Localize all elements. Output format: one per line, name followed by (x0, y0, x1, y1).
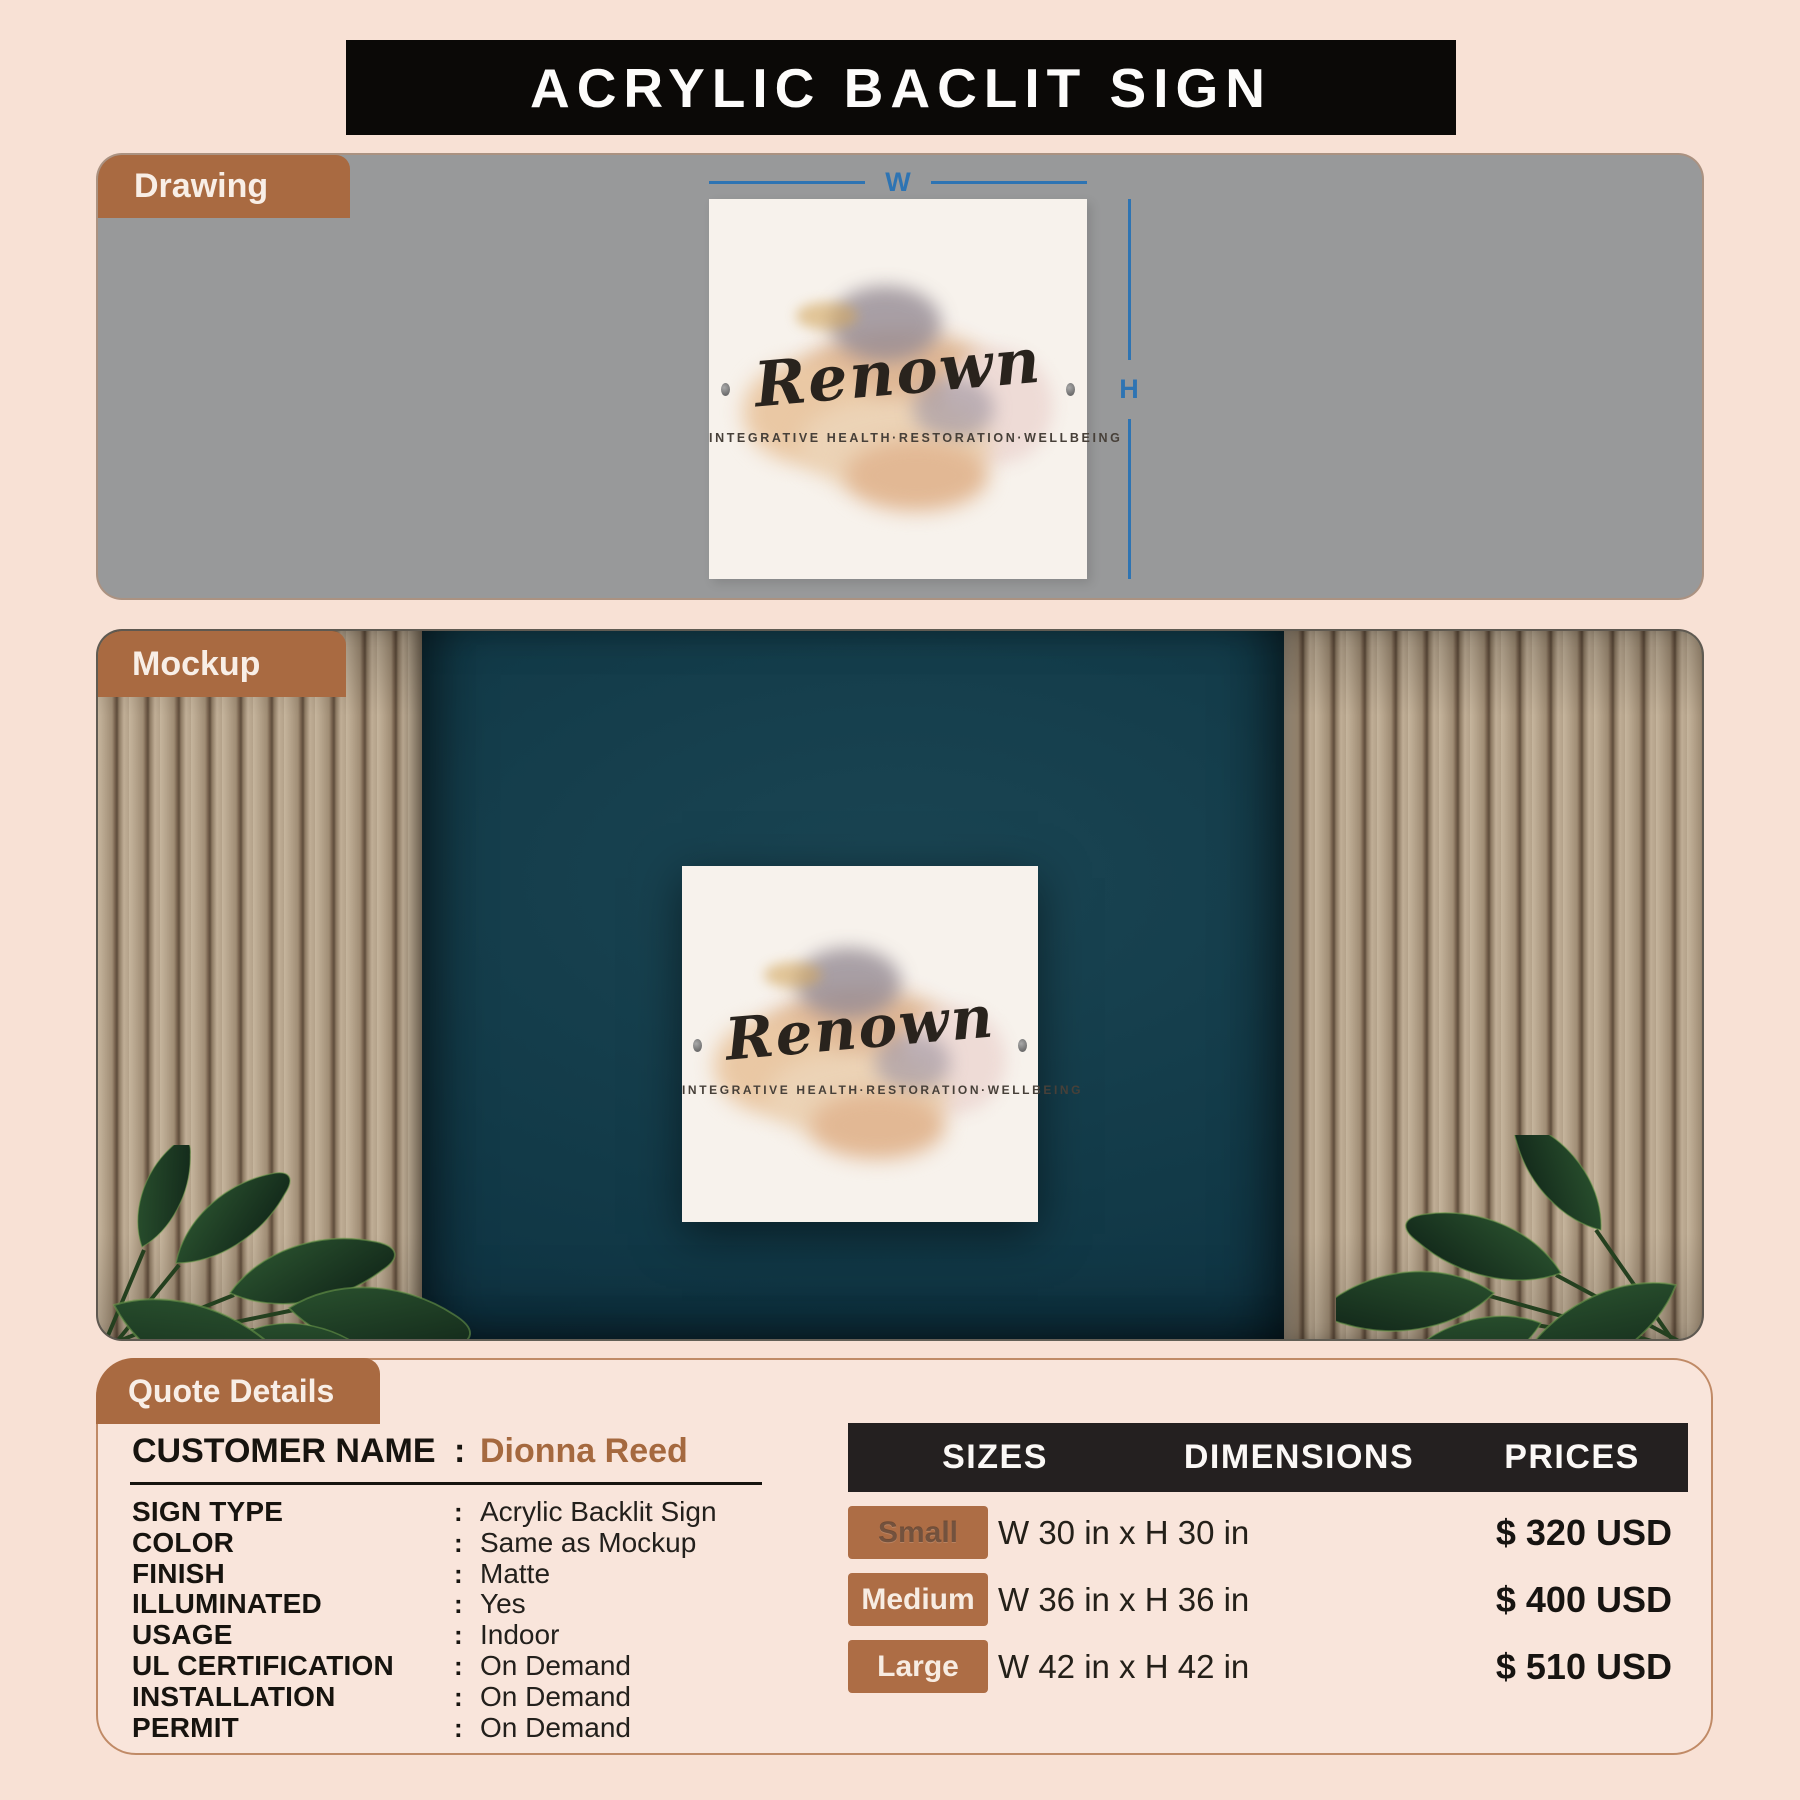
dimensions-small: W 30 in x H 30 in (998, 1514, 1408, 1552)
header-dimensions: DIMENSIONS (1142, 1438, 1456, 1477)
header-prices: PRICES (1456, 1438, 1688, 1477)
colon: : (454, 1713, 480, 1744)
dimension-line-segment (931, 181, 1087, 184)
height-dimension-label: H (1119, 374, 1139, 405)
quote-row-color: COLOR : Same as Mockup (132, 1527, 792, 1558)
dimensions-medium: W 36 in x H 36 in (998, 1581, 1408, 1619)
price-small: $ 320 USD (1408, 1512, 1688, 1554)
size-button-small[interactable]: Small (848, 1506, 988, 1559)
plant-left (96, 1145, 514, 1341)
dimension-line-segment (709, 181, 865, 184)
price-medium: $ 400 USD (1408, 1579, 1688, 1621)
dimensions-large: W 42 in x H 42 in (998, 1648, 1408, 1686)
quote-row-usage: USAGE : Indoor (132, 1619, 792, 1650)
quote-row-illuminated: ILLUMINATED : Yes (132, 1588, 792, 1619)
quote-details-panel: Quote Details CUSTOMER NAME : Dionna Ree… (96, 1358, 1713, 1755)
customer-name-row: CUSTOMER NAME : Dionna Reed (132, 1432, 772, 1471)
dimension-line-segment (1128, 419, 1131, 580)
height-dimension-line: H (1112, 199, 1146, 579)
colon: : (454, 1620, 480, 1651)
mounting-screw-icon (1018, 1039, 1027, 1052)
quote-details-tab-label: Quote Details (128, 1373, 334, 1410)
customer-underline (130, 1482, 762, 1485)
quote-row-permit: PERMIT : On Demand (132, 1712, 792, 1743)
mockup-tab-label: Mockup (132, 645, 260, 684)
customer-name-value: Dionna Reed (480, 1432, 772, 1471)
size-button-large[interactable]: Large (848, 1640, 988, 1693)
colon: : (454, 1559, 480, 1590)
dimension-line-segment (1128, 199, 1131, 360)
brand-tagline: INTEGRATIVE HEALTH·RESTORATION·WELLBEING (709, 431, 1087, 445)
sign-mockup: Renown INTEGRATIVE HEALTH·RESTORATION·WE… (682, 866, 1038, 1222)
quote-row-sign-type: SIGN TYPE : Acrylic Backlit Sign (132, 1496, 792, 1527)
pricing-table-header: SIZES DIMENSIONS PRICES (848, 1423, 1688, 1492)
pricing-row-small: Small W 30 in x H 30 in $ 320 USD (848, 1506, 1688, 1559)
drawing-tab-label: Drawing (134, 167, 268, 206)
brand-tagline: INTEGRATIVE HEALTH·RESTORATION·WELLBEING (682, 1083, 1038, 1097)
quote-row-installation: INSTALLATION : On Demand (132, 1681, 792, 1712)
colon: : (454, 1651, 480, 1682)
size-button-medium[interactable]: Medium (848, 1573, 988, 1626)
colon: : (454, 1432, 480, 1471)
drawing-panel: Drawing W H Renown INTEGRATIVE HEALTH·RE… (96, 153, 1704, 600)
pricing-table: SIZES DIMENSIONS PRICES Small W 30 in x … (848, 1423, 1688, 1693)
header-sizes: SIZES (848, 1438, 1142, 1477)
colon: : (454, 1682, 480, 1713)
quote-row-finish: FINISH : Matte (132, 1558, 792, 1589)
colon: : (454, 1497, 480, 1528)
plant-right (1336, 1135, 1704, 1341)
colon: : (454, 1589, 480, 1620)
quote-details-tab: Quote Details (96, 1358, 380, 1424)
mockup-tab: Mockup (98, 631, 346, 697)
customer-name-label: CUSTOMER NAME (132, 1432, 454, 1471)
quote-rows: SIGN TYPE : Acrylic Backlit Sign COLOR :… (132, 1496, 792, 1742)
title-bar: ACRYLIC BACLIT SIGN (346, 40, 1456, 135)
mounting-screw-icon (1066, 383, 1075, 396)
quote-row-ul-certification: UL CERTIFICATION : On Demand (132, 1650, 792, 1681)
price-large: $ 510 USD (1408, 1646, 1688, 1688)
drawing-tab: Drawing (98, 155, 350, 218)
colon: : (454, 1528, 480, 1559)
mockup-panel: Mockup Renown INTEGRATIVE HEALTH·RESTORA… (96, 629, 1704, 1341)
pricing-row-large: Large W 42 in x H 42 in $ 510 USD (848, 1640, 1688, 1693)
width-dimension-line: W (709, 165, 1087, 199)
sign-drawing: Renown INTEGRATIVE HEALTH·RESTORATION·WE… (709, 199, 1087, 579)
width-dimension-label: W (885, 167, 910, 198)
pricing-row-medium: Medium W 36 in x H 36 in $ 400 USD (848, 1573, 1688, 1626)
page-title: ACRYLIC BACLIT SIGN (530, 56, 1272, 120)
